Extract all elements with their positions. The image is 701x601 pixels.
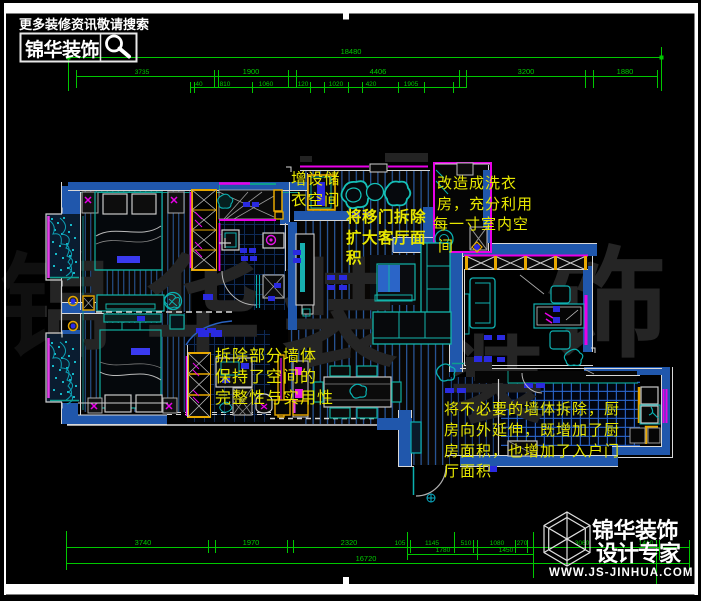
svg-text:WWW.JS-JINHUA.COM: WWW.JS-JINHUA.COM xyxy=(549,567,694,579)
svg-text:1450: 1450 xyxy=(499,547,514,554)
svg-text:锦华装饰: 锦华装饰 xyxy=(25,38,100,61)
svg-text:2320: 2320 xyxy=(341,538,358,547)
svg-text:每一寸室内空: 每一寸室内空 xyxy=(433,216,529,233)
svg-text:16720: 16720 xyxy=(356,554,377,563)
svg-text:18480: 18480 xyxy=(341,47,362,56)
svg-text:510: 510 xyxy=(461,540,472,547)
svg-text:保持了空间的: 保持了空间的 xyxy=(215,368,317,386)
svg-text:房向外延伸，既增加了厨: 房向外延伸，既增加了厨 xyxy=(444,422,620,439)
svg-text:105: 105 xyxy=(395,540,406,547)
svg-text:1880: 1880 xyxy=(617,67,634,76)
svg-text:270: 270 xyxy=(517,540,528,547)
svg-text:1905: 1905 xyxy=(404,81,419,88)
svg-text:积: 积 xyxy=(346,249,362,267)
svg-text:房面积，也增加了入户门: 房面积，也增加了入户门 xyxy=(444,443,620,460)
svg-text:3740: 3740 xyxy=(135,538,152,547)
svg-text:420: 420 xyxy=(366,81,377,88)
svg-text:设计专家: 设计专家 xyxy=(596,541,682,566)
svg-text:3735: 3735 xyxy=(135,69,150,76)
svg-text:厅面积: 厅面积 xyxy=(444,463,492,480)
svg-text:810: 810 xyxy=(220,81,231,88)
svg-text:1900: 1900 xyxy=(243,67,260,76)
svg-text:120: 120 xyxy=(298,81,309,88)
svg-text:房，充分利用: 房，充分利用 xyxy=(437,196,533,213)
svg-text:锦华装饰: 锦华装饰 xyxy=(592,518,679,543)
svg-text:1020: 1020 xyxy=(329,81,344,88)
svg-text:改造成洗衣: 改造成洗衣 xyxy=(437,175,517,192)
svg-text:40: 40 xyxy=(195,81,203,88)
svg-text:4406: 4406 xyxy=(370,67,387,76)
svg-text:1080: 1080 xyxy=(490,540,505,547)
svg-text:1060: 1060 xyxy=(259,81,274,88)
svg-text:增设储: 增设储 xyxy=(291,170,341,188)
svg-text:拆除部分墙体: 拆除部分墙体 xyxy=(215,347,317,365)
svg-text:完整性与实用性: 完整性与实用性 xyxy=(215,389,334,407)
svg-text:1780: 1780 xyxy=(436,547,451,554)
svg-text:将不必要的墙体拆除，厨: 将不必要的墙体拆除，厨 xyxy=(444,401,620,418)
svg-text:1145: 1145 xyxy=(425,540,439,547)
svg-text:间: 间 xyxy=(438,238,454,255)
svg-text:1970: 1970 xyxy=(243,538,260,547)
svg-text:3060: 3060 xyxy=(575,540,590,547)
svg-text:衣空间: 衣空间 xyxy=(291,191,341,209)
svg-text:将移门拆除: 将移门拆除 xyxy=(346,207,426,226)
svg-text:3200: 3200 xyxy=(518,67,535,76)
svg-text:扩大客厅面: 扩大客厅面 xyxy=(346,228,426,247)
svg-text:更多装修资讯敬请搜索: 更多装修资讯敬请搜索 xyxy=(19,17,149,32)
